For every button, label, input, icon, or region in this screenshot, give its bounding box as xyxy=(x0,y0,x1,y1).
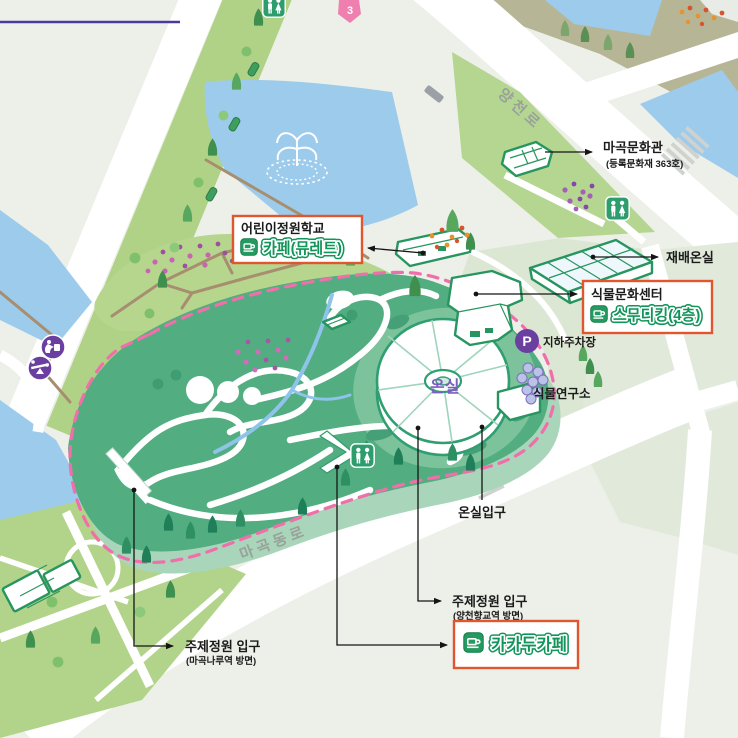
highlight-box-kakadu-cafe[interactable]: 카카두카페 카카두카페 xyxy=(454,621,578,668)
restroom-icon xyxy=(351,444,374,467)
plant-research-institute-label: 식물연구소 xyxy=(533,386,591,401)
greenhouse-label: 온실 xyxy=(430,378,459,396)
marker-3-label: 3 xyxy=(347,5,353,17)
cultivation-greenhouse-label: 재배온실 xyxy=(666,250,714,265)
kakadu-cafe-label: 카카두카페 xyxy=(491,635,567,654)
underground-parking-label: 지하주차장 xyxy=(543,335,596,349)
magok-culture-house-sublabel: (등록문화재 363호) xyxy=(606,158,683,170)
cafe-icon xyxy=(464,633,483,652)
children-garden-school-cafe-label: 카페(뮤레트) xyxy=(263,240,342,257)
children-garden-school-title: 어린이정원학교 xyxy=(241,221,325,236)
theme-garden-entrance-west-label: 주제정원 입구 xyxy=(185,639,260,654)
theme-garden-entrance-east-label: 주제정원 입구 xyxy=(452,594,527,609)
parking-letter: P xyxy=(522,333,531,349)
plant-culture-center-title: 식물문화센터 xyxy=(591,287,663,302)
park-map: 온실 xyxy=(0,0,738,738)
theme-garden-entrance-west-sublabel: (마곡나루역 방면) xyxy=(186,655,256,667)
restroom-icon xyxy=(263,0,285,17)
restroom-icon xyxy=(606,197,629,220)
greenhouse-entrance-label: 온실입구 xyxy=(458,505,506,520)
highlight-box-plant-culture-center[interactable]: 식물문화센터 스무디킹(4층) 스무디킹(4층) xyxy=(583,281,712,333)
plant-culture-center-cafe-label: 스무디킹(4층) xyxy=(613,306,700,324)
cafe-icon xyxy=(591,306,608,323)
map-canvas: 온실 xyxy=(0,0,738,738)
seesaw-icon xyxy=(28,356,52,380)
cafe-icon xyxy=(241,239,258,256)
drinking-fountain-icon xyxy=(41,335,65,359)
magok-culture-house-label: 마곡문화관 xyxy=(603,140,663,155)
parking-icon[interactable]: P xyxy=(515,329,539,353)
highlight-box-children-garden-school[interactable]: 어린이정원학교 카페(뮤레트) 카페(뮤레트) xyxy=(233,216,362,263)
